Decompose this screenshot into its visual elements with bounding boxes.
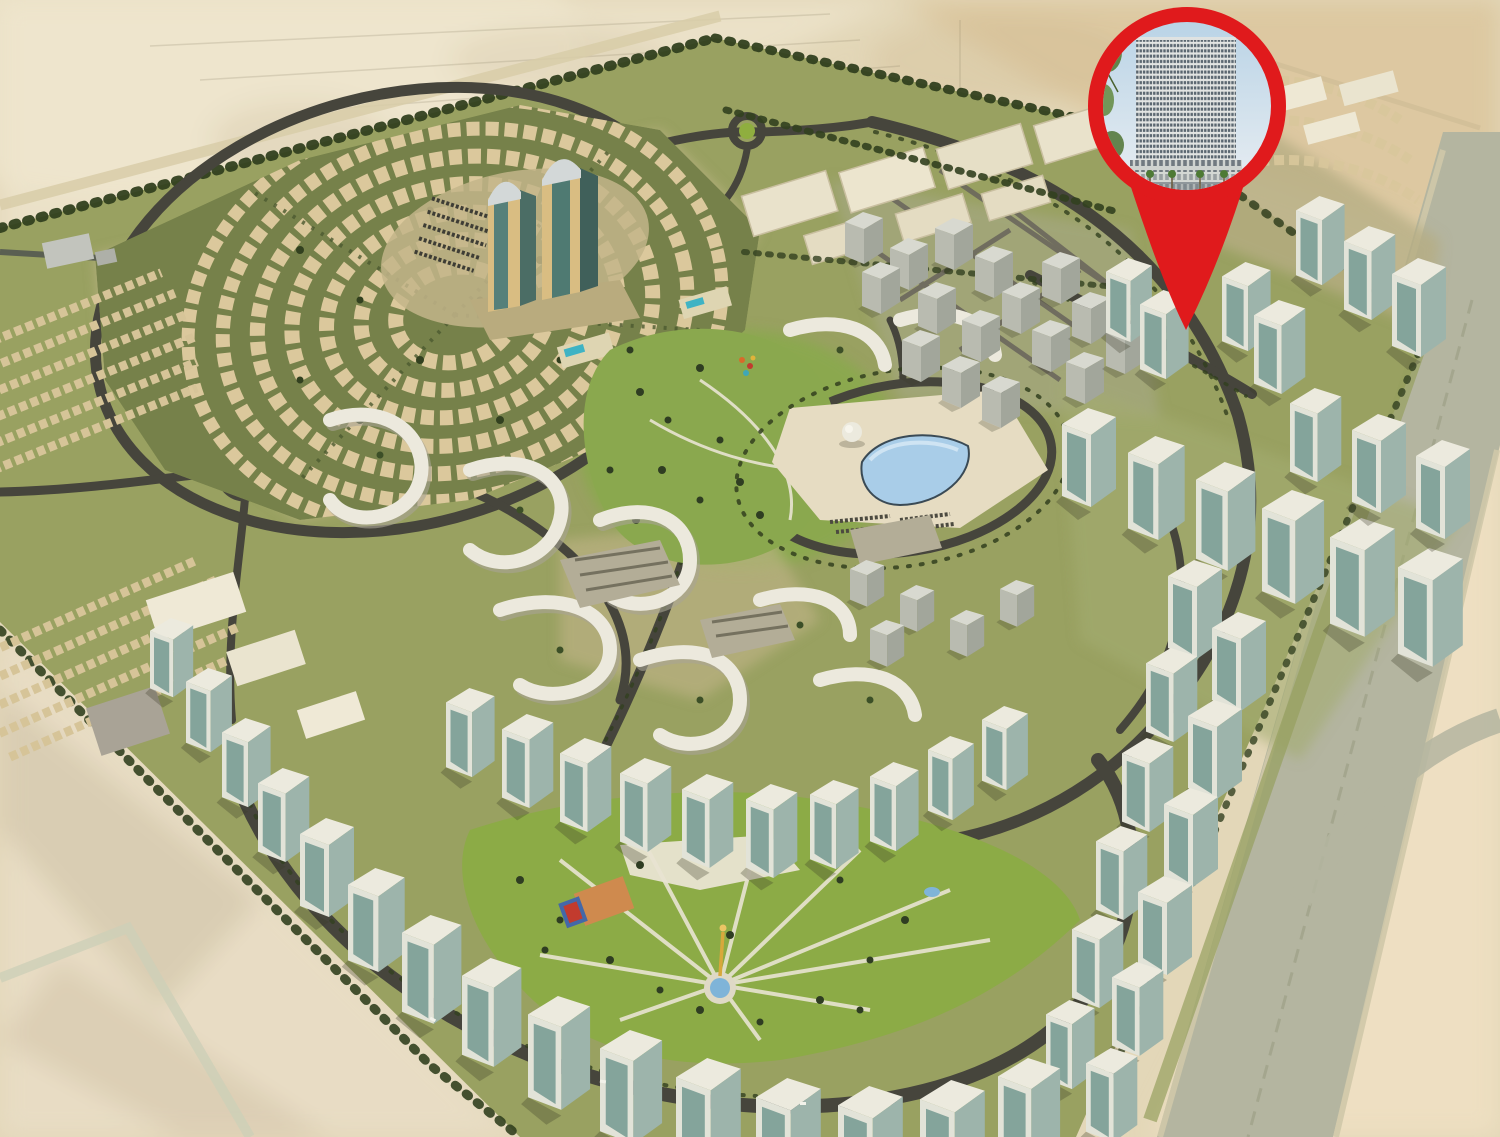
landmark-twin-towers	[488, 159, 598, 312]
park-pond	[924, 887, 940, 897]
photo-tower-facade	[1126, 37, 1246, 191]
masterplan-aerial-view	[0, 0, 1500, 1137]
